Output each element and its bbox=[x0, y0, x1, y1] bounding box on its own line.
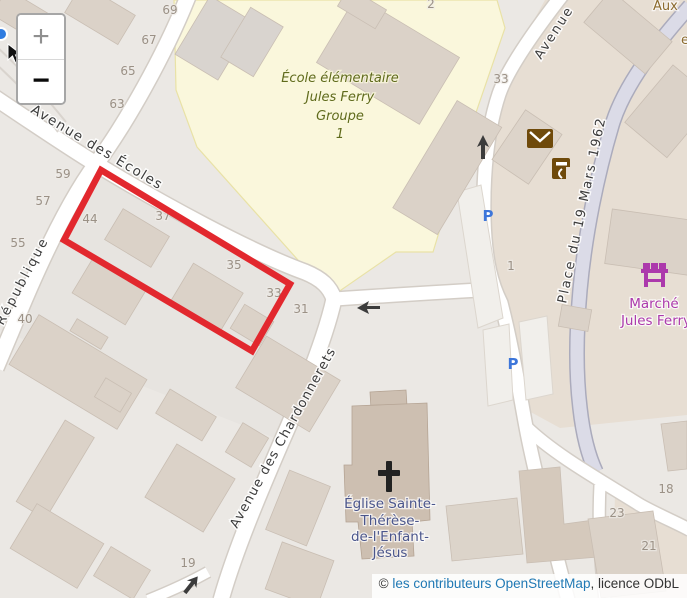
house-number: 44 bbox=[82, 212, 97, 226]
house-number: 40 bbox=[17, 312, 32, 326]
house-number: 63 bbox=[109, 97, 124, 111]
svg-text:Église Sainte-: Église Sainte- bbox=[344, 495, 436, 512]
map-viewport: Avenue des Écoles République Avenue des … bbox=[0, 0, 687, 598]
house-number: 19 bbox=[180, 556, 195, 570]
zoom-control: + − bbox=[16, 13, 66, 105]
house-number: 67 bbox=[141, 33, 156, 47]
svg-text:Groupe: Groupe bbox=[316, 109, 364, 124]
zoom-out-button[interactable]: − bbox=[18, 60, 64, 104]
atm-icon bbox=[552, 158, 570, 179]
svg-text:Thérèse-: Thérèse- bbox=[360, 513, 420, 529]
svg-text:Jésus: Jésus bbox=[372, 545, 408, 561]
location-marker-dot bbox=[0, 28, 7, 40]
house-number: 18 bbox=[658, 482, 673, 496]
label-e-partial: e bbox=[681, 33, 687, 48]
parking-p-icon: P bbox=[508, 355, 519, 373]
map-canvas[interactable]: Avenue des Écoles République Avenue des … bbox=[0, 0, 687, 598]
house-number: 69 bbox=[162, 3, 177, 17]
attribution-bar: © les contributeurs OpenStreetMap, licen… bbox=[372, 574, 687, 598]
svg-text:de-l'Enfant-: de-l'Enfant- bbox=[351, 529, 429, 545]
parking-p-icon: P bbox=[483, 207, 494, 225]
zoom-in-button[interactable]: + bbox=[18, 15, 64, 60]
svg-text:1: 1 bbox=[336, 127, 344, 142]
osm-contributors-link[interactable]: les contributeurs OpenStreetMap bbox=[392, 576, 590, 591]
licence-text: , licence ODbL bbox=[590, 576, 679, 591]
house-number: 65 bbox=[120, 64, 135, 78]
svg-text:École élémentaire: École élémentaire bbox=[281, 70, 399, 86]
house-number: 57 bbox=[35, 194, 50, 208]
market-label: Marché Jules Ferry bbox=[620, 296, 687, 329]
house-number: 21 bbox=[641, 539, 656, 553]
svg-text:Jules Ferry: Jules Ferry bbox=[620, 313, 687, 329]
copyright-symbol: © bbox=[379, 576, 393, 591]
house-number: 31 bbox=[293, 302, 308, 316]
house-number: 55 bbox=[10, 236, 25, 250]
label-aux-partial: Aux bbox=[653, 0, 678, 14]
svg-text:Marché: Marché bbox=[629, 296, 678, 312]
house-number: 23 bbox=[609, 506, 624, 520]
svg-text:Jules Ferry: Jules Ferry bbox=[303, 90, 375, 105]
house-number: 59 bbox=[55, 167, 70, 181]
house-number: 1 bbox=[507, 259, 515, 273]
house-number: 35 bbox=[226, 258, 241, 272]
house-number: 33 bbox=[493, 72, 508, 86]
house-number: 2 bbox=[427, 0, 435, 11]
post-office-icon bbox=[527, 129, 553, 148]
